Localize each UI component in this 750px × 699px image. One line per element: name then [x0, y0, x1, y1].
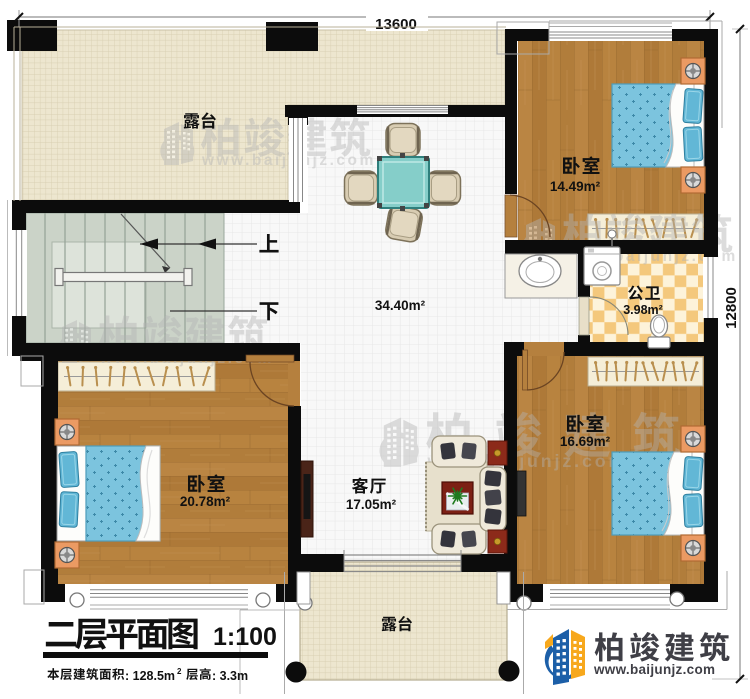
svg-text:13600: 13600 — [375, 16, 417, 33]
svg-text:16.69m²: 16.69m² — [560, 434, 611, 449]
svg-text:17.05m²: 17.05m² — [346, 497, 397, 512]
svg-text:: 3.3m: : 3.3m — [212, 669, 248, 683]
svg-text:: 128.5m: : 128.5m — [125, 669, 175, 683]
svg-text:12800: 12800 — [723, 287, 740, 329]
svg-text:www.baijunjz.com: www.baijunjz.com — [593, 662, 715, 677]
svg-text:3.98m²: 3.98m² — [623, 303, 663, 317]
svg-text:20.78m²: 20.78m² — [180, 494, 231, 509]
svg-text:www.baijunjz.com: www.baijunjz.com — [201, 152, 376, 169]
svg-text:34.40m²: 34.40m² — [375, 298, 426, 313]
svg-text:2: 2 — [177, 667, 182, 676]
svg-text:1:100: 1:100 — [213, 623, 277, 651]
svg-text:14.49m²: 14.49m² — [550, 179, 601, 194]
